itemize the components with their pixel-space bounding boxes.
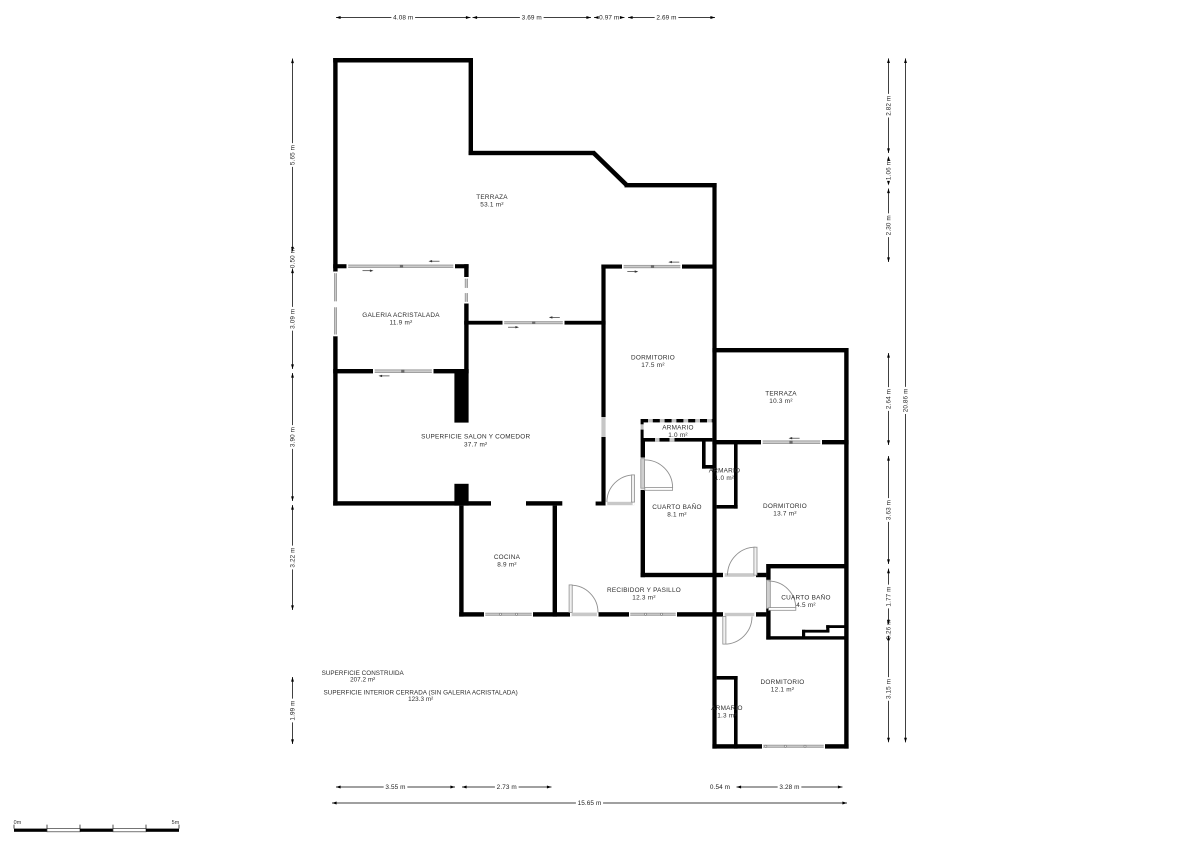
svg-text:0.26 m: 0.26 m (886, 619, 893, 639)
svg-text:207.2 m²: 207.2 m² (350, 677, 375, 684)
svg-text:DORMITORIO: DORMITORIO (761, 679, 805, 686)
svg-text:8.9 m²: 8.9 m² (497, 561, 517, 568)
svg-text:4.5 m²: 4.5 m² (796, 602, 816, 609)
svg-text:3.90 m: 3.90 m (290, 427, 297, 447)
svg-text:CUARTO BAÑO: CUARTO BAÑO (781, 592, 830, 601)
svg-text:3.15 m: 3.15 m (886, 679, 893, 699)
svg-text:TERRAZA: TERRAZA (476, 194, 508, 201)
svg-text:1.99 m: 1.99 m (290, 700, 297, 720)
svg-text:3.55 m: 3.55 m (385, 784, 405, 791)
svg-text:RECIBIDOR Y PASILLO: RECIBIDOR Y PASILLO (607, 587, 681, 594)
svg-text:SUPERFICIE SALON Y COMEDOR: SUPERFICIE SALON Y COMEDOR (421, 434, 530, 441)
svg-text:53.1 m²: 53.1 m² (480, 201, 503, 208)
svg-text:3.09 m: 3.09 m (290, 309, 297, 329)
svg-text:5.65 m: 5.65 m (290, 145, 297, 165)
svg-text:15.65 m: 15.65 m (578, 800, 602, 807)
svg-text:ARMARIO: ARMARIO (711, 705, 743, 712)
svg-text:DORMITORIO: DORMITORIO (631, 354, 675, 361)
svg-text:11.9 m²: 11.9 m² (390, 319, 413, 326)
svg-text:8.1 m²: 8.1 m² (667, 511, 687, 518)
svg-text:3.63 m: 3.63 m (886, 500, 893, 520)
svg-text:3.28 m: 3.28 m (779, 784, 799, 791)
svg-text:17.5 m²: 17.5 m² (641, 362, 664, 369)
svg-text:12.3 m²: 12.3 m² (632, 594, 655, 601)
svg-text:GALERIA ACRISTALADA: GALERIA ACRISTALADA (362, 312, 440, 319)
svg-text:123.3 m²: 123.3 m² (408, 696, 433, 703)
svg-text:0.50 m: 0.50 m (290, 248, 297, 268)
svg-text:2.73 m: 2.73 m (497, 784, 517, 791)
svg-text:3.22 m: 3.22 m (290, 547, 297, 567)
svg-text:ARMARIO: ARMARIO (709, 467, 741, 474)
svg-text:1.77 m: 1.77 m (886, 586, 893, 606)
svg-text:20.86 m: 20.86 m (903, 389, 910, 413)
svg-text:1.3 m²: 1.3 m² (717, 712, 737, 719)
svg-text:3.69 m: 3.69 m (522, 15, 542, 22)
svg-text:COCINA: COCINA (494, 554, 521, 561)
svg-text:0.97 m: 0.97 m (599, 15, 619, 22)
svg-text:ARMARIO: ARMARIO (662, 424, 694, 431)
svg-text:12.1 m²: 12.1 m² (771, 686, 794, 693)
svg-text:5m: 5m (172, 820, 180, 826)
svg-text:1.0 m²: 1.0 m² (715, 475, 735, 482)
svg-text:2.69 m: 2.69 m (656, 15, 676, 22)
svg-text:37.7 m²: 37.7 m² (464, 441, 487, 448)
svg-text:2.82 m: 2.82 m (886, 96, 893, 116)
svg-text:1.06 m: 1.06 m (886, 160, 893, 180)
svg-text:0.54 m: 0.54 m (710, 784, 730, 791)
svg-text:2.30 m: 2.30 m (886, 215, 893, 235)
svg-text:DORMITORIO: DORMITORIO (763, 503, 807, 510)
svg-text:CUARTO BAÑO: CUARTO BAÑO (652, 502, 701, 511)
svg-text:13.7 m²: 13.7 m² (773, 510, 796, 517)
svg-text:0m: 0m (14, 820, 22, 826)
svg-text:TERRAZA: TERRAZA (765, 390, 797, 397)
svg-text:4.08 m: 4.08 m (393, 15, 413, 22)
svg-text:10.3 m²: 10.3 m² (769, 398, 792, 405)
svg-text:2.64 m: 2.64 m (886, 389, 893, 409)
svg-text:1.0 m²: 1.0 m² (668, 432, 688, 439)
